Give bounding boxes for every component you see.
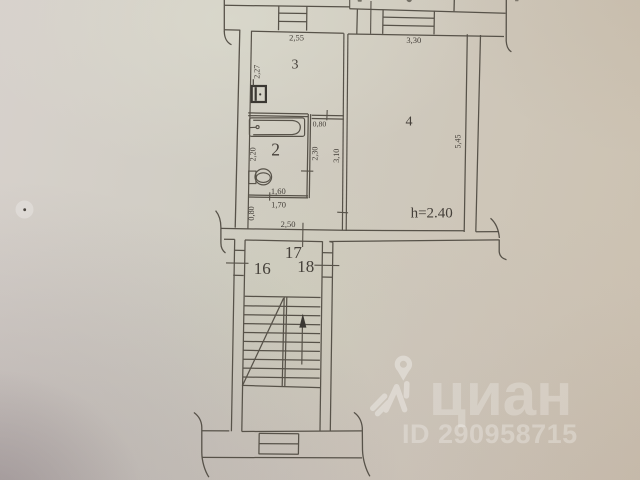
svg-text:h=2.40: h=2.40 (411, 205, 453, 221)
svg-text:циан: циан (429, 361, 572, 428)
svg-text:16: 16 (254, 259, 271, 278)
svg-text:0,80: 0,80 (247, 206, 256, 220)
svg-text:2,55: 2,55 (289, 33, 304, 43)
svg-text:3,10: 3,10 (332, 149, 341, 163)
svg-text:1,60: 1,60 (271, 186, 286, 196)
svg-text:18: 18 (297, 257, 314, 276)
svg-text:3: 3 (292, 58, 299, 73)
svg-text:1,70: 1,70 (271, 200, 286, 210)
svg-text:2,50: 2,50 (281, 219, 296, 229)
svg-text:0,80: 0,80 (313, 119, 327, 128)
svg-text:4: 4 (406, 115, 413, 130)
svg-text:2,20: 2,20 (248, 147, 257, 161)
svg-text:2: 2 (271, 140, 280, 160)
svg-text:5,45: 5,45 (454, 135, 463, 149)
svg-text:2,30: 2,30 (310, 147, 319, 161)
svg-text:ID 290958715: ID 290958715 (402, 419, 578, 449)
svg-text:2,27: 2,27 (253, 65, 262, 79)
svg-text:3,30: 3,30 (406, 35, 421, 45)
